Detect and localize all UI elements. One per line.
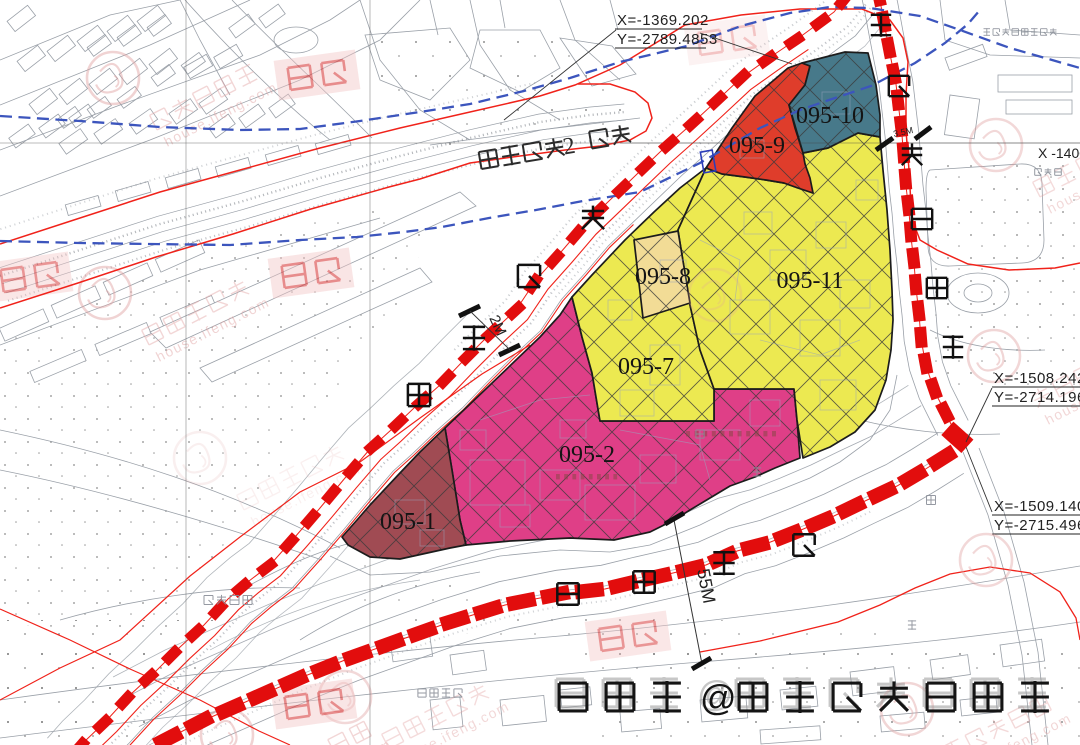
svg-text:Y=-2715.4962: Y=-2715.4962 — [994, 517, 1080, 534]
svg-text:X=-1509.1401: X=-1509.1401 — [994, 498, 1080, 515]
svg-text:X -1400: X -1400 — [1038, 145, 1080, 161]
svg-text:095-8: 095-8 — [635, 264, 691, 290]
svg-text:095-10: 095-10 — [796, 103, 864, 129]
svg-text:X=-1369.202: X=-1369.202 — [617, 12, 709, 29]
svg-text:095-9: 095-9 — [729, 133, 785, 159]
svg-text:095-11: 095-11 — [776, 268, 843, 294]
svg-text:095-7: 095-7 — [618, 354, 674, 380]
svg-text:X=-1508.2427: X=-1508.2427 — [994, 370, 1080, 387]
svg-text:095-2: 095-2 — [559, 442, 615, 468]
svg-text:095-1: 095-1 — [380, 509, 436, 535]
svg-text:@: @ — [700, 677, 737, 718]
svg-text:Y=-2714.1962: Y=-2714.1962 — [994, 389, 1080, 406]
